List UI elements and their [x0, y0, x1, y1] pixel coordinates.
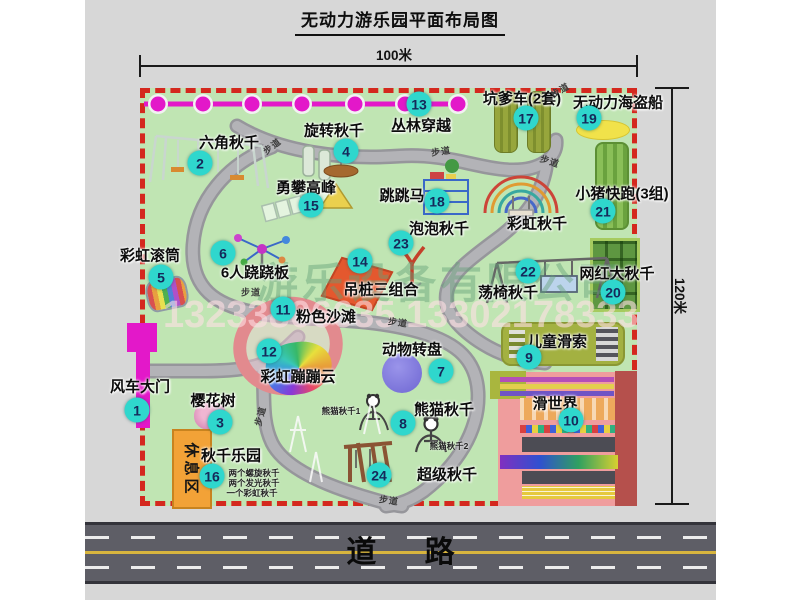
attraction-badge-12: 12 — [257, 339, 282, 364]
attraction-badge-16: 16 — [200, 464, 225, 489]
attraction-label-6: 6人跷跷板 — [221, 262, 289, 283]
attraction-label-1: 风车大门 — [110, 376, 170, 397]
attraction-badge-24: 24 — [367, 463, 392, 488]
attraction-badge-6: 6 — [211, 241, 236, 266]
sub-label-4: 一个彩虹秋千 — [226, 487, 277, 499]
attraction-badge-4: 4 — [334, 139, 359, 164]
footpath-label-6: 步道 — [251, 405, 269, 428]
attraction-label-7: 动物转盘 — [382, 339, 442, 360]
footpath-label-7: 步道 — [378, 492, 400, 508]
road-label: 道 路 — [85, 525, 716, 581]
attraction-label-8: 熊猫秋千 — [414, 399, 474, 420]
attraction-badge-1: 1 — [125, 398, 150, 423]
attraction-badge-9: 9 — [517, 345, 542, 370]
attraction-badge-5: 5 — [149, 265, 174, 290]
attraction-label-23: 泡泡秋千 — [409, 218, 469, 239]
sub-label-0: 熊猫秋千1 — [322, 405, 361, 417]
attraction-badge-10: 10 — [559, 408, 584, 433]
attraction-label-5: 彩虹滚筒 — [120, 245, 180, 266]
attraction-badge-14: 14 — [348, 249, 373, 274]
attraction-label-12: 彩虹蹦蹦云 — [260, 366, 335, 387]
attraction-badge-17: 17 — [514, 106, 539, 131]
attraction-label-24: 超级秋千 — [417, 464, 477, 485]
attraction-label-14: 吊桩三组合 — [343, 279, 418, 300]
attraction-badge-23: 23 — [389, 231, 414, 256]
attraction-badge-7: 7 — [429, 359, 454, 384]
bottom-road: 道 路 — [85, 522, 716, 584]
attraction-label-11: 粉色沙滩 — [296, 306, 356, 327]
footpath-label-2: 步道 — [538, 152, 561, 171]
attraction-label-22: 荡椅秋千 — [478, 282, 538, 303]
attraction-label-21: 小猪快跑(3组) — [575, 183, 668, 204]
attraction-badge-2: 2 — [188, 151, 213, 176]
attraction-badge-8: 8 — [391, 411, 416, 436]
attraction-badge-11: 11 — [271, 297, 296, 322]
attraction-badge-3: 3 — [208, 410, 233, 435]
attraction-label-3: 樱花树 — [190, 390, 235, 411]
attraction-label-18: 跳跳马 — [379, 185, 424, 206]
attraction-label-2: 六角秋千 — [199, 132, 259, 153]
screenshot-stage: 无动力游乐园平面布局图 100米 120米 — [0, 0, 800, 600]
attraction-label-4: 旋转秋千 — [304, 120, 364, 141]
footpath-label-4: 步道 — [241, 286, 261, 299]
attraction-label-16: 秋千乐园 — [201, 445, 261, 466]
attraction-badge-22: 22 — [516, 259, 541, 284]
footpath-label-5: 步道 — [387, 314, 409, 330]
attraction-badge-15: 15 — [299, 193, 324, 218]
attraction-badge-13: 13 — [407, 92, 432, 117]
attraction-badge-20: 20 — [601, 280, 626, 305]
footpath-label-1: 步道 — [430, 143, 452, 159]
sub-label-1: 熊猫秋千2 — [430, 440, 469, 452]
attraction-badge-18: 18 — [425, 189, 450, 214]
markers-layer: 风车大门1六角秋千2樱花树3旋转秋千4彩虹滚筒56人跷跷板6动物转盘7熊猫秋千8… — [0, 0, 800, 600]
attraction-label-rainbow-swing: 彩虹秋千 — [507, 213, 567, 234]
attraction-label-13: 丛林穿越 — [391, 115, 451, 136]
attraction-badge-19: 19 — [577, 106, 602, 131]
footpath-label-0: 步道 — [260, 135, 284, 158]
attraction-badge-21: 21 — [591, 199, 616, 224]
